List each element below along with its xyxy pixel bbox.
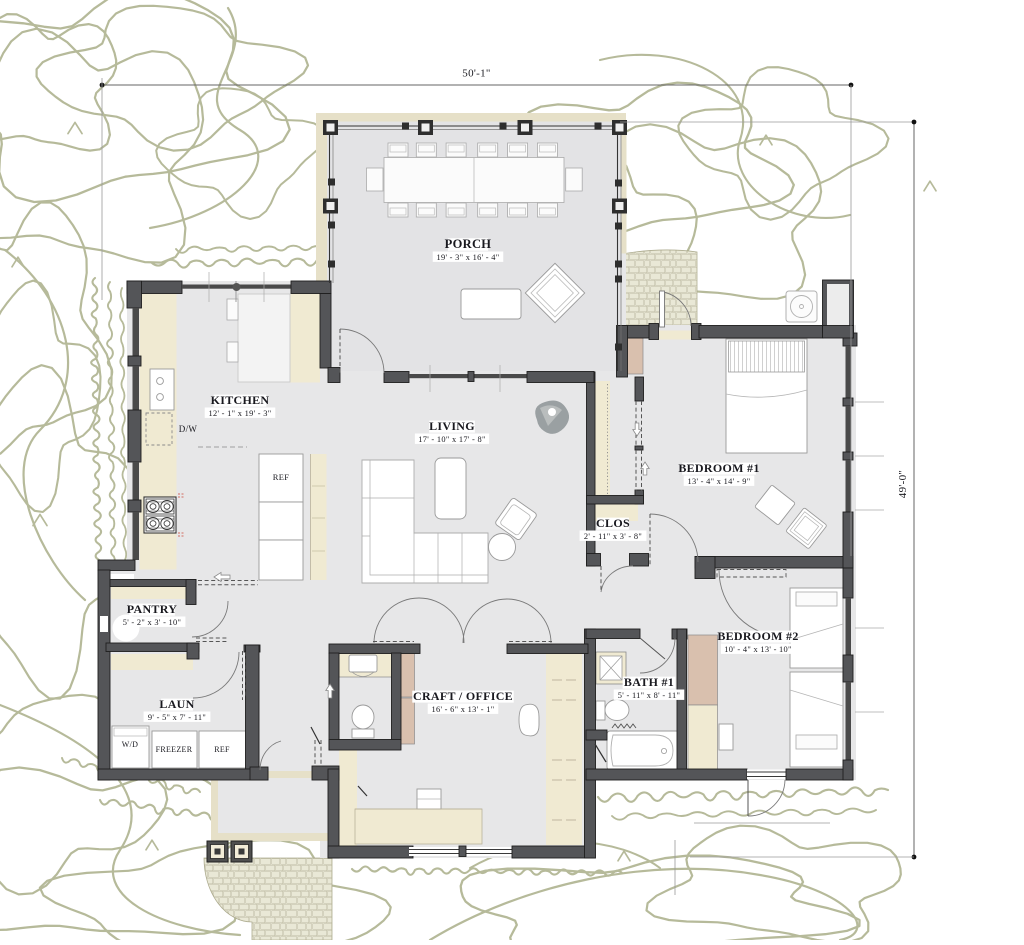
- svg-text:BATH #1: BATH #1: [624, 675, 674, 689]
- svg-text:16' - 6" x 13' - 1": 16' - 6" x 13' - 1": [431, 705, 494, 714]
- svg-text:REF: REF: [273, 472, 290, 482]
- svg-text:BEDROOM #1: BEDROOM #1: [678, 461, 759, 475]
- svg-text:PORCH: PORCH: [445, 237, 492, 251]
- svg-text:FREEZER: FREEZER: [156, 745, 193, 754]
- svg-text:LIVING: LIVING: [429, 419, 475, 433]
- svg-text:49'-0": 49'-0": [897, 470, 909, 498]
- svg-text:5' - 2" x 3' - 10": 5' - 2" x 3' - 10": [123, 618, 182, 627]
- svg-text:D/W: D/W: [179, 424, 198, 434]
- svg-text:12' - 1" x 19' - 3": 12' - 1" x 19' - 3": [208, 409, 271, 418]
- svg-text:17' - 10" x 17' - 8": 17' - 10" x 17' - 8": [418, 435, 486, 444]
- svg-text:CRAFT / OFFICE: CRAFT / OFFICE: [413, 689, 513, 703]
- svg-text:50'-1": 50'-1": [462, 68, 490, 80]
- svg-text:9' - 5" x 7' - 11": 9' - 5" x 7' - 11": [148, 713, 206, 722]
- svg-text:10' - 4" x 13' - 10": 10' - 4" x 13' - 10": [724, 645, 792, 654]
- svg-text:2' - 11" x 3' - 8": 2' - 11" x 3' - 8": [584, 532, 642, 541]
- svg-text:13' - 4" x 14' - 9": 13' - 4" x 14' - 9": [687, 477, 750, 486]
- svg-text:LAUN: LAUN: [159, 697, 194, 711]
- svg-text:BEDROOM #2: BEDROOM #2: [717, 629, 798, 643]
- svg-text:W/D: W/D: [122, 740, 138, 749]
- svg-text:19' - 3" x 16' - 4": 19' - 3" x 16' - 4": [436, 253, 499, 262]
- svg-text:PANTRY: PANTRY: [127, 602, 178, 616]
- svg-text:KITCHEN: KITCHEN: [211, 393, 270, 407]
- svg-text:REF: REF: [214, 745, 230, 754]
- svg-text:CLOS: CLOS: [596, 516, 630, 530]
- svg-text:5' - 11" x 8' - 11": 5' - 11" x 8' - 11": [618, 691, 680, 700]
